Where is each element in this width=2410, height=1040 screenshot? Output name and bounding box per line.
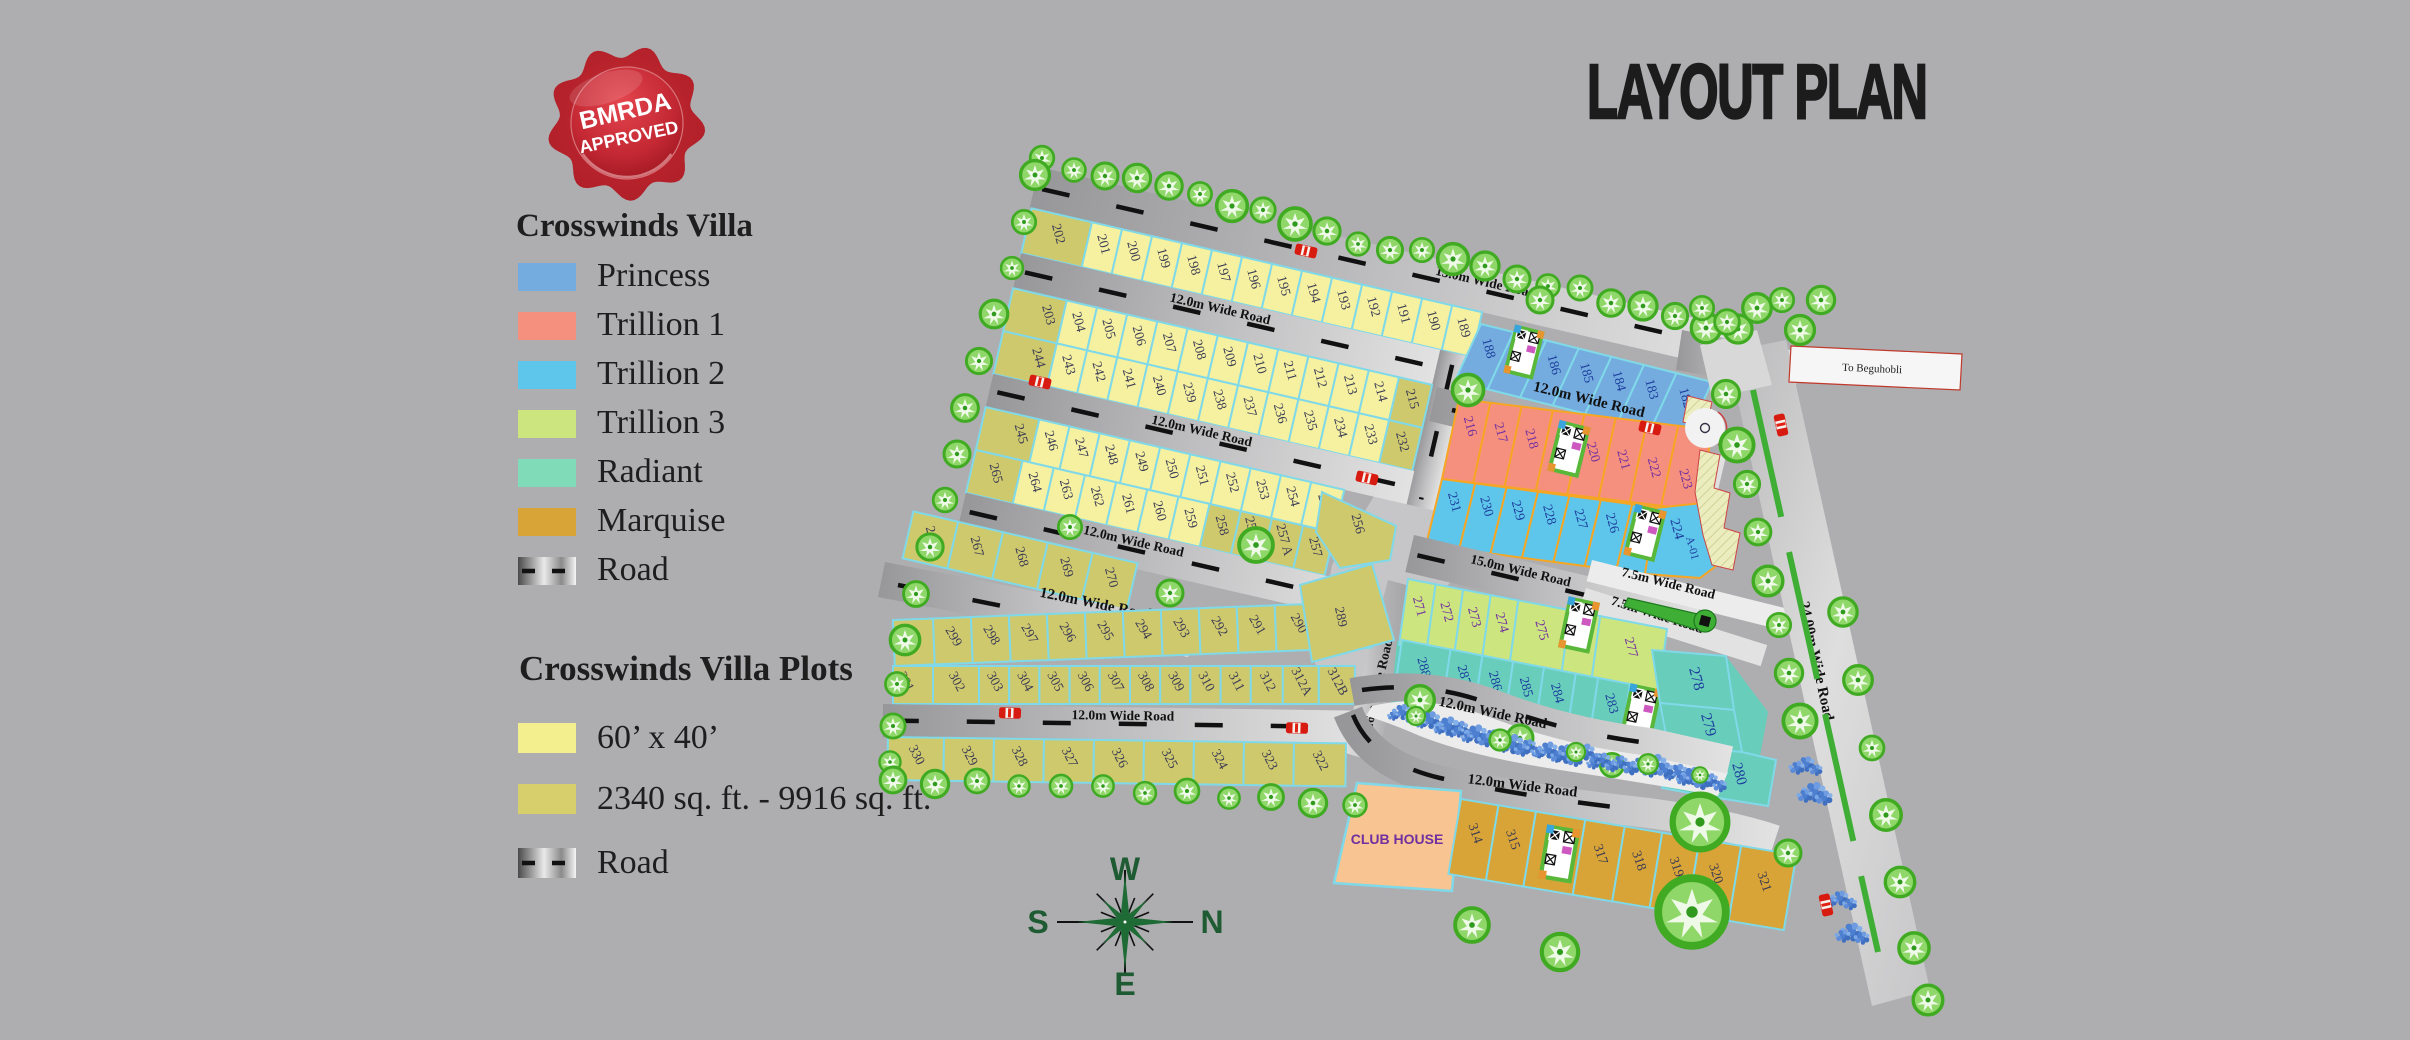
- svg-text:Trillion 1: Trillion 1: [597, 306, 725, 343]
- svg-text:Radiant: Radiant: [597, 453, 703, 490]
- svg-text:12.0m Wide Road: 12.0m Wide Road: [1071, 707, 1174, 723]
- svg-text:Trillion 2: Trillion 2: [597, 355, 725, 392]
- svg-text:Trillion 3: Trillion 3: [597, 404, 725, 441]
- svg-text:Princess: Princess: [597, 257, 710, 294]
- svg-text:LAYOUT PLAN: LAYOUT PLAN: [1587, 48, 1927, 134]
- svg-text:60’ x 40’: 60’ x 40’: [597, 719, 719, 756]
- svg-text:E: E: [1114, 966, 1135, 1002]
- svg-text:Marquise: Marquise: [597, 502, 725, 539]
- svg-text:N: N: [1200, 904, 1223, 940]
- svg-text:Road: Road: [597, 551, 669, 588]
- svg-text:S: S: [1027, 904, 1048, 940]
- svg-text:Crosswinds Villa: Crosswinds Villa: [516, 208, 753, 244]
- svg-text:CLUB HOUSE: CLUB HOUSE: [1351, 831, 1444, 847]
- svg-text:W: W: [1110, 851, 1141, 887]
- svg-text:Crosswinds Villa Plots: Crosswinds Villa Plots: [519, 649, 853, 688]
- svg-text:Road: Road: [597, 844, 669, 881]
